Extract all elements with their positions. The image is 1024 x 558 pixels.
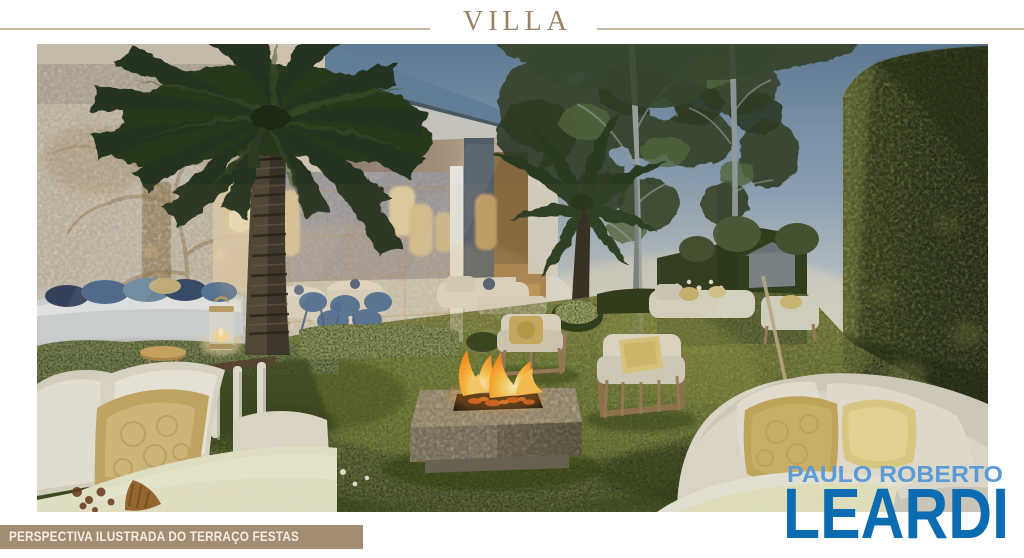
svg-text:LEARDI: LEARDI — [783, 475, 1009, 554]
